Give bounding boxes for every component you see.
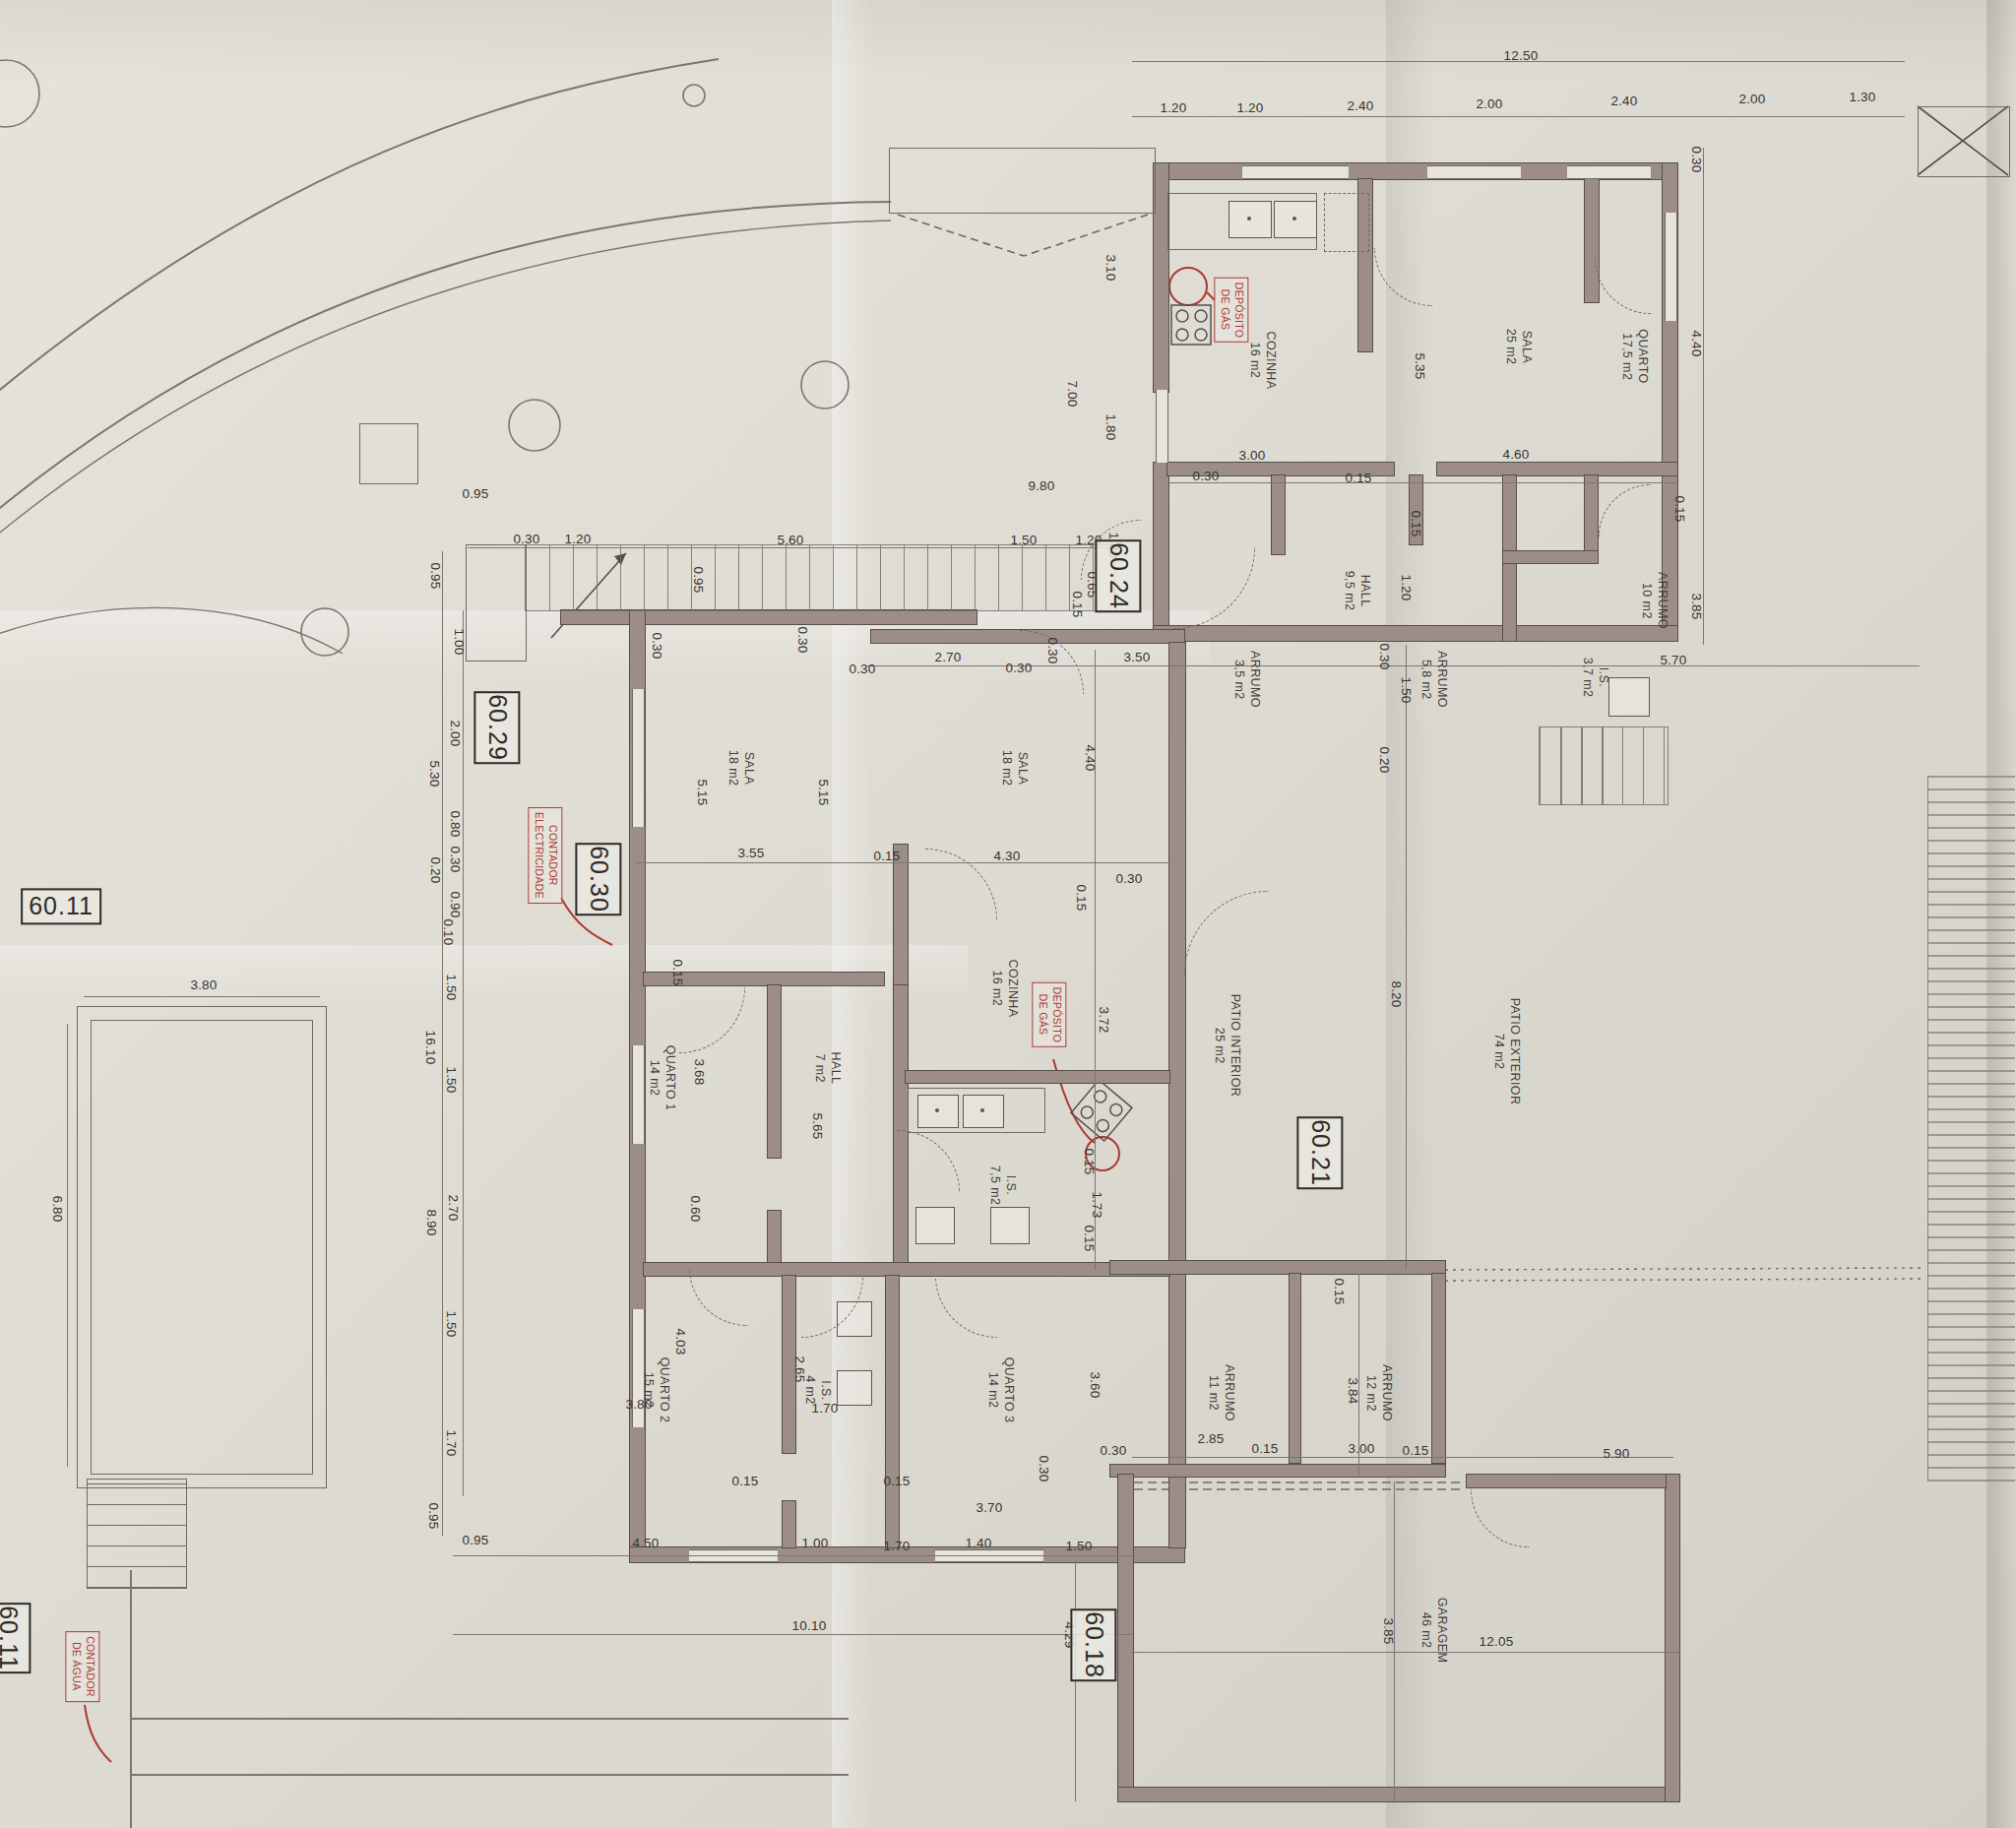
door-arc [1173,547,1255,629]
door-arc [925,849,997,920]
door-arc [1599,484,1651,536]
dimension-label: 1.73 [1089,1191,1105,1218]
window [1242,165,1349,179]
dimension-label: 5.15 [815,779,832,805]
dimension-label: 3.84 [1345,1377,1361,1404]
bottom-line [130,1718,849,1720]
elevation-marker: 60.11 [21,888,101,924]
dimension-label: 2.85 [1197,1431,1224,1448]
room-label: QUARTO 314 m2 [984,1357,1015,1423]
room-label: ARRUMO3,5 m2 [1230,651,1261,708]
wall-segment [906,1071,1169,1083]
dimension-label: 0.15 [731,1474,758,1490]
dimension-label: 16.10 [422,1031,439,1065]
dimension-line [635,862,1169,863]
floorplan-paper-photo: 12.501.201.202.402.002.402.001.303.004.6… [0,0,2016,1828]
dimension-label: 7.00 [1064,380,1081,407]
dimension-label: 0.30 [1044,637,1061,663]
dimension-line [442,551,443,1536]
wall-segment [894,985,908,1265]
wall-segment [1437,463,1677,475]
dimension-line [1167,482,1677,483]
elevation-marker: 60.24 [1095,539,1141,612]
dimension-label: 3.55 [737,846,764,862]
room-label: SALA25 m2 [1502,329,1533,365]
dimension-label: 2.00 [1738,92,1765,108]
room-label: HALL9,5 m2 [1341,571,1371,611]
wall-segment [1154,163,1168,392]
dimension-label: 0.15 [1671,495,1688,522]
dimension-label: 2.70 [445,1194,462,1221]
wc-fixture [837,1370,872,1406]
elevation-marker: 60.21 [1296,1116,1343,1189]
room-label: I.S.3,7 m2 [1579,658,1609,698]
dimension-label: 3.00 [1348,1441,1374,1458]
dimension-label: 5.30 [426,760,443,787]
dimension-line [1703,148,1704,645]
dimension-label: 2.00 [447,720,464,746]
door-arc [689,1268,747,1326]
dimension-label: 0.90 [447,891,464,917]
dimension-line [453,1555,1132,1556]
utility-annotation: CONTADORELECTRICIDADE [528,807,562,904]
room-label: ARRUMO12 m2 [1362,1364,1393,1421]
dimension-label: 5.70 [1660,653,1686,669]
wall-segment [1169,643,1185,1547]
wall-segment [1585,179,1599,302]
dimension-label: 3.85 [1688,593,1705,619]
dimension-label: 0.30 [649,632,665,659]
wall-segment [1290,1274,1300,1463]
bottom-line [130,1774,849,1776]
fridge-dashed [1324,193,1369,252]
wall-segment [1467,1475,1666,1487]
dimension-label: 1.50 [1010,533,1037,549]
room-label: PATIO EXTERIOR74 m2 [1490,998,1521,1105]
wall-segment [1118,1475,1133,1801]
wc-fixture [915,1207,955,1244]
dimension-label: 1.20 [1160,100,1186,117]
door-arc [898,1130,960,1192]
dimension-label: 1.40 [965,1536,991,1552]
window [1427,165,1521,179]
door-arc [1374,248,1432,306]
dimension-label: 1.30 [1849,90,1875,106]
dimension-label: 0.30 [1192,469,1219,485]
dimension-label: 1.20 [1236,100,1263,117]
dimension-line [84,996,320,997]
dimension-label: 1.00 [451,628,468,655]
stair-hatch [1539,726,1669,805]
wall-segment [768,985,781,1158]
dimension-line [1406,645,1407,1270]
elevation-marker: 60.11 [0,1603,31,1673]
dimension-label: 0.20 [1376,746,1393,773]
wall-segment [1154,626,1677,641]
dimension-label: 1.20 [564,532,591,548]
dimension-label: 4.03 [672,1328,689,1355]
dimension-label: 0.95 [462,1533,488,1549]
door-arc [679,987,745,1053]
door-arc [935,1276,997,1338]
dimension-label: 5.35 [1412,352,1428,379]
dimension-label: 3.00 [1238,448,1265,465]
dimension-label: 0.15 [1345,471,1371,487]
room-label: PATIO INTERIOR25 m2 [1211,994,1241,1097]
dimension-label: 2.70 [934,650,961,666]
dimension-label: 12.05 [1480,1634,1514,1651]
room-label: ARRUMO10 m2 [1638,572,1669,629]
wall-segment [1432,1274,1445,1463]
dimension-label: 3.10 [1102,254,1119,281]
dimension-label: 2.40 [1347,98,1373,115]
dimension-label: 0.15 [1081,1225,1098,1251]
elevation-marker: 60.18 [1070,1608,1116,1681]
wall-segment [1118,1788,1679,1801]
sink-dot [1247,217,1251,221]
dimension-label: 5.90 [1603,1446,1629,1463]
sink-dot [980,1108,984,1112]
dimension-label: 0.15 [873,849,900,865]
wall-segment [1666,1475,1679,1801]
dimension-label: 2.40 [1610,94,1637,110]
wc-fixture [990,1207,1030,1244]
window [632,1045,645,1144]
dimension-label: 1.50 [443,1310,460,1337]
porch-outline [889,148,1156,214]
dimension-label: 1.70 [883,1539,910,1555]
wc-fixture [1608,677,1650,717]
dimension-line [1095,650,1096,1270]
dimension-label: 3.72 [1096,1006,1112,1033]
dimension-label: 0.30 [1100,1443,1126,1460]
dimension-label: 10.10 [792,1618,827,1635]
utility-annotation: DEPÓSITODE GÁS [1214,278,1248,343]
dimension-label: 4.40 [1082,744,1099,771]
sink-dot [935,1108,939,1112]
dimension-label: 0.30 [794,626,811,653]
dimension-label: 0.20 [427,856,444,883]
utility-annotation: CONTADORDE ÁGUA [65,1631,99,1702]
dimension-label: 5.65 [809,1112,826,1139]
window [632,689,645,827]
room-label: QUARTO 215 m2 [640,1357,670,1423]
room-label: I.S.4 m2 [801,1375,832,1404]
dimension-label: 1.20 [1398,574,1415,600]
dimension-label: 0.80 [447,810,464,837]
dimension-label: 0.30 [1005,661,1032,677]
bottom-vline [130,1570,132,1828]
dimension-label: 9.80 [1028,478,1054,495]
dimension-label: 0.30 [849,662,875,678]
wall-segment [1503,551,1598,563]
dimension-line [1132,1652,1679,1653]
wall-segment [894,845,908,987]
room-label: HALL7 m2 [811,1052,842,1085]
dimension-label: 0.30 [1115,871,1142,888]
dimension-label: 4.40 [1688,330,1705,356]
wall-segment [783,1501,795,1547]
dimension-label: 0.15 [1408,510,1424,536]
dimension-label: 1.50 [1398,676,1415,703]
dimension-label: 8.20 [1388,980,1405,1007]
dimension-label: 1.50 [443,974,460,1000]
dimension-label: 8.90 [423,1209,440,1235]
dimension-label: 12.50 [1504,48,1539,65]
wall-segment [886,1276,899,1547]
dimension-label: 3.70 [976,1500,1002,1517]
dimension-label: 1.50 [1065,1539,1092,1555]
wall-segment [1585,475,1598,554]
dimension-label: 0.30 [1036,1455,1052,1481]
room-label: I.S.7,5 m2 [986,1166,1017,1206]
sink-dot [1292,217,1296,221]
dimension-label: 4.30 [993,849,1020,865]
dimension-label: 1.00 [801,1536,828,1552]
dimension-label: 0.15 [1073,884,1090,911]
survey-box [1918,106,2010,177]
wall-segment [1110,1465,1445,1477]
room-label: COZINHA16 m2 [1246,331,1277,389]
dimension-label: 0.15 [1402,1443,1428,1460]
room-label: ARRUMO11 m2 [1205,1364,1235,1421]
dimension-label: 3.60 [1087,1371,1103,1398]
door-arc [1471,1489,1529,1547]
wall-segment [1272,475,1285,554]
room-label: SALA18 m2 [998,750,1029,787]
stair-side-box [466,544,527,662]
room-label: QUARTO 114 m2 [646,1045,676,1111]
dimension-label: 1.80 [1102,413,1119,440]
elevation-marker: 60.29 [473,691,520,764]
window [1665,213,1677,321]
dimension-label: 0.95 [425,1502,442,1529]
boundary-hatch [1927,776,2015,1481]
dimension-label: 0.15 [669,959,686,985]
dimension-label: 0.95 [427,562,444,589]
dimension-label: 3.85 [1380,1617,1397,1644]
stair-hatch [525,544,1115,611]
utility-annotation: DEPÓSITODE GÁS [1032,982,1066,1047]
dimension-label: 4.50 [632,1536,659,1552]
dimension-label: 0.60 [687,1195,704,1222]
dimension-label: 1.70 [443,1429,460,1456]
dimension-label: 2.00 [1476,96,1502,113]
dimension-label: 0.15 [1251,1441,1278,1458]
dimension-label: 0.10 [440,918,457,945]
dimension-label: 3.68 [691,1058,708,1085]
dimension-label: 0.30 [513,532,539,548]
dimension-label: 0.15 [1081,1148,1098,1174]
dimension-label: 0.15 [1331,1278,1348,1304]
generated-layer: 12.501.201.202.402.002.402.001.303.004.6… [0,0,2016,1828]
dimension-label: 0.30 [447,846,464,872]
dimension-label: 0.15 [883,1474,910,1490]
dimension-label: 3.80 [190,977,217,994]
dimension-label: 4.60 [1502,447,1529,464]
dimension-label: 0.95 [462,486,488,503]
pool-inner [91,1020,313,1475]
room-label: GARAGEM46 m2 [1417,1598,1448,1664]
exterior-steps [87,1479,187,1589]
elevation-marker: 60.30 [575,843,621,915]
dimension-label: 5.60 [777,533,803,549]
wall-segment [561,610,976,624]
wall-segment [768,1211,781,1268]
dimension-label: 0.15 [1069,591,1086,617]
dimension-line [67,1024,68,1467]
window [1567,165,1651,179]
door-arc [1595,258,1651,314]
dimension-label: 0.30 [1376,643,1393,669]
door-arc [1184,891,1268,975]
room-label: SALA18 m2 [724,750,755,787]
wall-segment [1110,1261,1445,1274]
dimension-label: 5.15 [694,779,711,805]
dimension-label: 6.80 [49,1195,66,1222]
room-label: QUARTO17,5 m2 [1618,329,1649,383]
dimension-label: 1.50 [443,1066,460,1093]
room-label: COZINHA16 m2 [988,959,1019,1017]
small-landing [359,423,418,484]
dimension-label: 0.30 [1688,146,1705,172]
wall-segment [1154,463,1168,641]
room-label: ARRUMO5,8 m2 [1417,651,1448,708]
dimension-label: 0.95 [690,566,707,593]
window [1156,390,1168,463]
dimension-label: 3.50 [1123,650,1150,666]
